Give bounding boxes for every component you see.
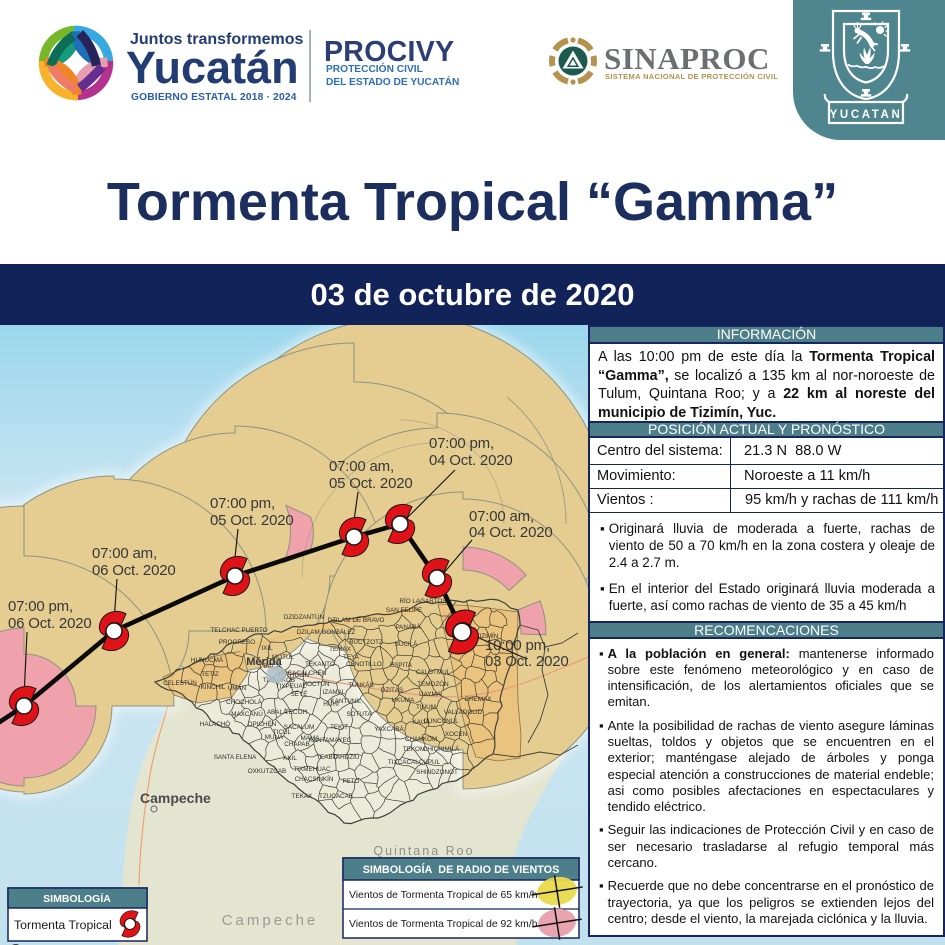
svg-text:VALLADOLID: VALLADOLID bbox=[444, 709, 483, 716]
svg-text:07:00 am,: 07:00 am, bbox=[469, 508, 534, 525]
svg-text:Vientos de Tormenta Tropical d: Vientos de Tormenta Tropical de 65 km/h bbox=[349, 890, 538, 901]
svg-text:YAXCABÁ: YAXCABÁ bbox=[374, 724, 404, 733]
svg-text:IZAMAL: IZAMAL bbox=[323, 689, 346, 696]
svg-text:DZITÁS: DZITÁS bbox=[381, 685, 403, 694]
svg-text:03 Oct. 2020: 03 Oct. 2020 bbox=[485, 653, 569, 670]
svg-text:TIXPEUAL: TIXPEUAL bbox=[276, 683, 307, 690]
svg-text:CHAPAB: CHAPAB bbox=[284, 741, 309, 748]
svg-text:ESPITA: ESPITA bbox=[390, 662, 413, 669]
svg-text:TECOH: TECOH bbox=[285, 709, 307, 716]
svg-text:CELESTÚN: CELESTÚN bbox=[163, 678, 197, 687]
svg-text:CUNCUNUL: CUNCUNUL bbox=[423, 718, 459, 725]
svg-text:PETO: PETO bbox=[342, 778, 359, 785]
svg-text:05 Oct. 2020: 05 Oct. 2020 bbox=[329, 475, 413, 492]
svg-text:SUCILÁ: SUCILÁ bbox=[395, 639, 419, 648]
svg-text:Campeche: Campeche bbox=[222, 912, 319, 929]
svg-text:BUCTZOTZ: BUCTZOTZ bbox=[349, 639, 383, 646]
svg-text:07:00 pm,: 07:00 pm, bbox=[210, 495, 275, 512]
svg-text:Quintana Roo: Quintana Roo bbox=[373, 844, 474, 858]
svg-text:07:00 pm,: 07:00 pm, bbox=[8, 598, 73, 615]
svg-text:PANABÁ: PANABÁ bbox=[395, 622, 421, 631]
svg-text:IXIL: IXIL bbox=[261, 645, 273, 652]
svg-text:Campeche: Campeche bbox=[140, 790, 211, 806]
svg-text:UKUMA: UKUMA bbox=[392, 697, 416, 704]
svg-text:TETIZ: TETIZ bbox=[201, 671, 219, 678]
svg-text:CHICHIMILÁ: CHICHIMILÁ bbox=[423, 744, 460, 753]
svg-text:OXKUTZCAB: OXKUTZCAB bbox=[248, 768, 287, 775]
svg-text:UMÁN: UMÁN bbox=[228, 683, 247, 692]
svg-text:06 Oct. 2020: 06 Oct. 2020 bbox=[8, 615, 92, 632]
svg-text:KANTUNIL: KANTUNIL bbox=[330, 698, 362, 705]
svg-text:TINUM: TINUM bbox=[416, 704, 436, 711]
svg-text:HOCTÚN: HOCTÚN bbox=[303, 679, 330, 688]
svg-text:YUCATAN: YUCATAN bbox=[830, 109, 903, 121]
svg-text:SANTA ELENA: SANTA ELENA bbox=[214, 754, 257, 761]
svg-text:SIMBOLOGÍA: SIMBOLOGÍA bbox=[43, 892, 111, 905]
svg-text:DZILAM DE BRAVO: DZILAM DE BRAVO bbox=[328, 617, 385, 624]
svg-text:XOCEN: XOCEN bbox=[445, 731, 468, 738]
svg-text:CHACSINKÍN: CHACSINKÍN bbox=[295, 774, 334, 783]
svg-text:UAYMA: UAYMA bbox=[419, 691, 442, 698]
svg-text:07:00 pm,: 07:00 pm, bbox=[429, 435, 494, 452]
svg-text:CACALCHÉN: CACALCHÉN bbox=[288, 668, 327, 677]
svg-text:05 Oct. 2020: 05 Oct. 2020 bbox=[210, 512, 294, 529]
svg-text:Tormenta Tropical: Tormenta Tropical bbox=[14, 918, 112, 932]
svg-text:PROGRESO: PROGRESO bbox=[219, 639, 255, 646]
svg-text:SHINDZONOT: SHINDZONOT bbox=[416, 769, 458, 776]
svg-text:TIXCACALCUPUL: TIXCACALCUPUL bbox=[388, 759, 441, 766]
svg-text:TEYA: TEYA bbox=[343, 654, 360, 661]
svg-text:MAXCANÚ: MAXCANÚ bbox=[231, 709, 263, 718]
svg-text:TIXMEHUAC: TIXMEHUAC bbox=[293, 766, 331, 773]
svg-text:SAN FELIPE: SAN FELIPE bbox=[386, 607, 422, 614]
svg-text:SIMBOLOGÍA DE RADIO DE VIENTO: SIMBOLOGÍA DE RADIO DE VIENTOS bbox=[363, 863, 560, 876]
svg-text:TICUL: TICUL bbox=[273, 729, 292, 736]
svg-text:04 Oct. 2020: 04 Oct. 2020 bbox=[469, 524, 553, 541]
svg-text:DZIDZANTÚN: DZIDZANTÚN bbox=[284, 612, 325, 621]
svg-text:07:00 am,: 07:00 am, bbox=[329, 458, 394, 475]
svg-text:SOTUTA: SOTUTA bbox=[346, 711, 372, 718]
svg-text:07:00 am,: 07:00 am, bbox=[92, 545, 157, 562]
svg-text:TELCHAC PUERTO: TELCHAC PUERTO bbox=[210, 627, 267, 634]
svg-text:CHOCHOLÁ: CHOCHOLÁ bbox=[226, 697, 262, 706]
svg-text:CHEMAX: CHEMAX bbox=[465, 696, 493, 703]
svg-text:KINCHIL: KINCHIL bbox=[201, 684, 226, 691]
svg-text:10:00 pm,: 10:00 pm, bbox=[485, 637, 550, 654]
svg-text:TEKAX: TEKAX bbox=[292, 793, 313, 800]
svg-text:Vientos de Tormenta Tropical d: Vientos de Tormenta Tropical de 92 km/h bbox=[349, 919, 538, 930]
svg-text:TEKIT: TEKIT bbox=[330, 724, 348, 731]
svg-text:06 Oct. 2020: 06 Oct. 2020 bbox=[92, 562, 176, 579]
svg-text:SEYÉ: SEYÉ bbox=[291, 689, 308, 698]
svg-text:Mérida: Mérida bbox=[246, 656, 282, 668]
svg-text:DZILAM GONZÁLEZ: DZILAM GONZÁLEZ bbox=[297, 627, 356, 636]
svg-text:CALOTMUL: CALOTMUL bbox=[416, 669, 451, 676]
svg-text:TAHDZIÚ: TAHDZIÚ bbox=[333, 752, 360, 761]
svg-text:04 Oct. 2020: 04 Oct. 2020 bbox=[429, 452, 513, 469]
svg-text:CHANKOM: CHANKOM bbox=[405, 736, 437, 743]
svg-text:OPICHÉN: OPICHÉN bbox=[248, 719, 277, 728]
svg-text:TEMAX: TEMAX bbox=[329, 646, 351, 653]
svg-text:KANTAMAYEC: KANTAMAYEC bbox=[309, 737, 352, 744]
svg-text:HUNUCMÁ: HUNUCMÁ bbox=[191, 655, 224, 664]
svg-text:AKIL: AKIL bbox=[283, 755, 297, 762]
svg-text:HALACHÓ: HALACHÓ bbox=[200, 719, 231, 728]
svg-text:TZUCACAB: TZUCACAB bbox=[319, 793, 353, 800]
svg-text:TEKANTÓ: TEKANTÓ bbox=[305, 659, 335, 668]
svg-text:TEMOZÓN: TEMOZÓN bbox=[417, 679, 449, 688]
svg-text:TUNKÁS: TUNKÁS bbox=[348, 680, 374, 689]
svg-text:CENOTILLO: CENOTILLO bbox=[346, 661, 382, 668]
